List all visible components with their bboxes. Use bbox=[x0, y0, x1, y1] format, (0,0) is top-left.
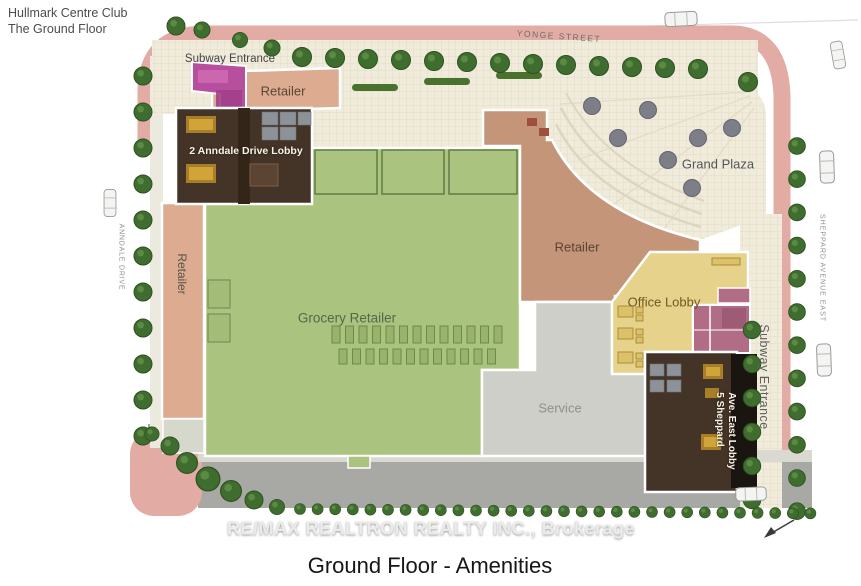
car-icon bbox=[819, 151, 834, 183]
grocery-stub bbox=[348, 456, 370, 468]
car-icon bbox=[816, 344, 831, 376]
car-icon bbox=[736, 487, 767, 501]
floor-plan-page: Hullmark Centre Club The Ground Floor YO… bbox=[0, 0, 861, 586]
car-icon bbox=[665, 11, 698, 27]
plan-title: Hullmark Centre Club The Ground Floor bbox=[8, 5, 127, 37]
anndale-lobby-area bbox=[176, 108, 312, 204]
floor-plan-drawing bbox=[0, 0, 861, 586]
north-arrow-icon bbox=[764, 520, 794, 538]
plan-title-line2: The Ground Floor bbox=[8, 21, 127, 37]
car-icon bbox=[830, 41, 846, 70]
car-icon bbox=[104, 189, 116, 216]
sheppard-lobby-area bbox=[645, 352, 757, 492]
plan-title-line1: Hullmark Centre Club bbox=[8, 5, 127, 21]
retailer-left-area bbox=[162, 203, 204, 419]
